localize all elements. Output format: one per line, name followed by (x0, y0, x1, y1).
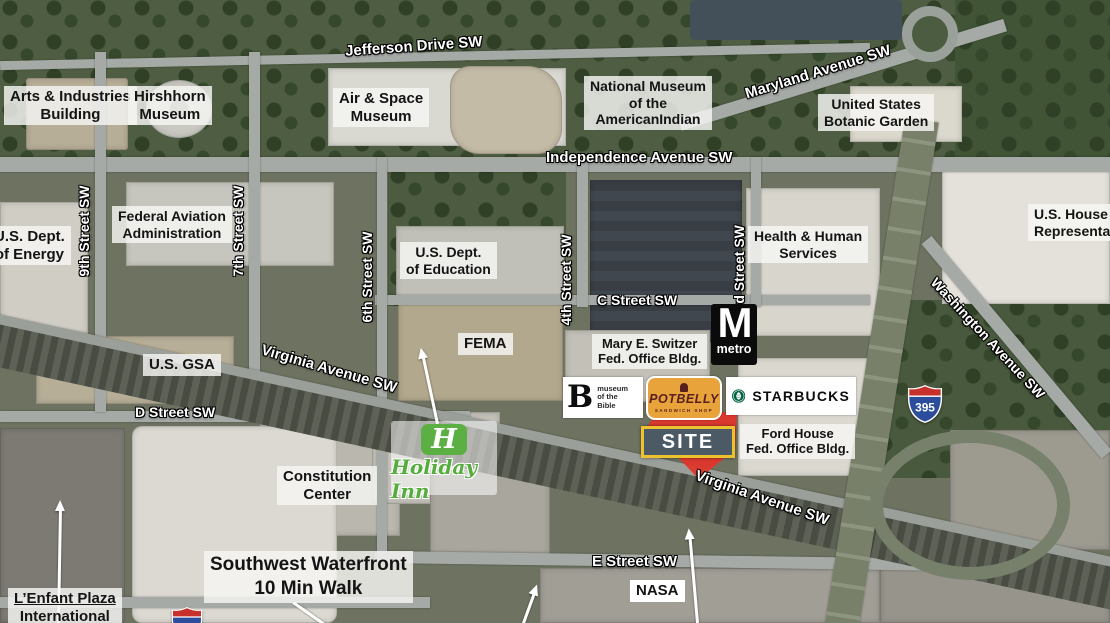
label-lenfant-plaza: L’Enfant Plaza International (8, 588, 122, 623)
museum-of-the-bible-logo: B museum of the Bible (563, 377, 643, 418)
label-us-house-representatives: U.S. House Representatives (1028, 204, 1110, 241)
metro-wordmark: metro (717, 343, 752, 356)
museum-bible-wordmark: museum of the Bible (597, 385, 628, 411)
starbucks-logo: STARBUCKS (726, 377, 856, 415)
metro-logo: M metro (711, 304, 757, 365)
label-southwest-waterfront: Southwest Waterfront 10 Min Walk (204, 551, 413, 603)
arrow-shaft (522, 594, 535, 623)
label-constitution-center: Constitution Center (277, 466, 377, 505)
potbelly-lantern-icon (680, 383, 688, 392)
label-line: of Education (406, 261, 491, 278)
water-reflecting-pool (690, 0, 902, 40)
street-label-6th-street: 6th Street SW (359, 231, 375, 322)
pointer-arrow-south-1 (518, 583, 541, 623)
label-arts-industries-building: Arts & Industries Building (4, 86, 137, 125)
label-us-botanic-garden: United States Botanic Garden (818, 94, 934, 131)
building-footprint (450, 66, 562, 154)
label-line: Hirshhorn (134, 88, 206, 106)
label-line: Air & Space (339, 90, 423, 108)
building-footprint (0, 202, 88, 334)
label-us-dept-energy: U.S. Dept. of Energy (0, 226, 71, 265)
label-line: Museum (134, 106, 206, 124)
label-health-human-services: Health & Human Services (748, 226, 868, 263)
label-line: U.S. Dept. (0, 228, 65, 246)
label-line: Services (754, 245, 862, 262)
label-line: Museum (339, 108, 423, 126)
label-national-museum-american-indian: National Museum of the AmericanIndian (584, 76, 712, 130)
holiday-inn-logo: H Holiday Inn (391, 421, 497, 495)
potbelly-tagline: SANDWICH SHOP (655, 408, 713, 413)
label-line: Center (283, 486, 371, 504)
freeway-ramp (870, 430, 1070, 580)
label-line: AmericanIndian (590, 111, 706, 128)
road-4th-street (577, 157, 588, 307)
street-label-4th-street: 4th Street SW (558, 234, 574, 325)
street-label-9th-street: 9th Street SW (76, 185, 92, 276)
label-line: 10 Min Walk (210, 577, 407, 601)
label-line: Fed. Office Bldg. (746, 441, 849, 456)
label-line: Botanic Garden (824, 113, 928, 130)
street-label-independence-avenue: Independence Avenue SW (546, 149, 732, 166)
label-faa: Federal Aviation Administration (112, 206, 232, 243)
traffic-circle (902, 6, 958, 62)
label-mary-switzer-building: Mary E. Switzer Fed. Office Bldg. (592, 334, 707, 369)
label-ford-house-building: Ford House Fed. Office Bldg. (740, 424, 855, 459)
road-6th-street (377, 157, 387, 562)
label-line: Southwest Waterfront (210, 553, 407, 577)
road-7th-street (249, 52, 260, 412)
street-label-7th-street: 7th Street SW (230, 185, 246, 276)
label-fema: FEMA (458, 333, 513, 355)
label-line: L’Enfant Plaza (14, 590, 116, 608)
street-label-c-street: C Street SW (597, 292, 677, 308)
label-line: Federal Aviation (118, 208, 226, 225)
label-line: Fed. Office Bldg. (598, 351, 701, 366)
label-hirshhorn-museum: Hirshhorn Museum (128, 86, 212, 125)
label-line: Health & Human (754, 228, 862, 245)
label-line: United States (824, 96, 928, 113)
starbucks-siren-icon (732, 381, 745, 411)
label-line: U.S. GSA (149, 356, 215, 374)
potbelly-wordmark: POTBELLY (649, 393, 719, 406)
museum-bible-b-icon: B (567, 384, 593, 412)
label-line: Constitution (283, 468, 371, 486)
holiday-inn-wordmark: Holiday Inn (391, 455, 497, 503)
label-line: Bible (597, 402, 628, 411)
starbucks-wordmark: STARBUCKS (752, 388, 850, 404)
label-line: FEMA (464, 335, 507, 353)
label-line: Arts & Industries (10, 88, 131, 106)
aerial-site-map: SITE Jefferson Drive SW Maryland Avenue … (0, 0, 1110, 623)
label-line: International (14, 608, 116, 623)
interstate-number: 395 (915, 401, 935, 415)
label-line: Ford House (746, 426, 849, 441)
label-line: Administration (118, 225, 226, 242)
potbelly-logo: POTBELLY SANDWICH SHOP (646, 376, 722, 420)
label-line: Building (10, 106, 131, 124)
label-line: U.S. Dept. (406, 244, 491, 261)
metro-m-icon: M (718, 304, 751, 343)
interstate-shield-partial: 395 (170, 606, 204, 623)
label-line: Mary E. Switzer (598, 336, 701, 351)
site-label: SITE (662, 431, 714, 454)
label-nasa: NASA (630, 580, 685, 602)
label-line: U.S. House (1034, 206, 1110, 223)
site-marker: SITE (641, 426, 735, 458)
label-line: NASA (636, 582, 679, 600)
street-label-e-street: E Street SW (592, 553, 677, 570)
label-line: Representatives (1034, 223, 1110, 240)
label-air-space-museum: Air & Space Museum (333, 88, 429, 127)
label-line: of Energy (0, 246, 65, 264)
label-us-dept-education: U.S. Dept. of Education (400, 242, 497, 279)
interstate-395-shield: 395 (906, 384, 944, 424)
arrowhead-icon (684, 528, 695, 540)
arrowhead-icon (55, 500, 65, 511)
street-label-d-street: D Street SW (135, 404, 215, 420)
label-line: National Museum (590, 78, 706, 95)
label-us-gsa: U.S. GSA (143, 354, 221, 376)
holiday-inn-h-icon: H (421, 424, 467, 455)
label-line: of the (590, 95, 706, 112)
